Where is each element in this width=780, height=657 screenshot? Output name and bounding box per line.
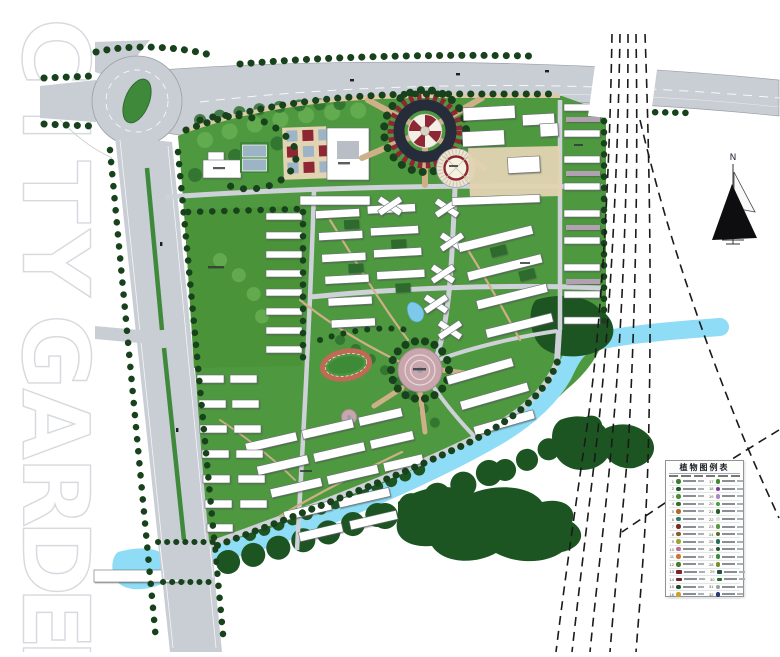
legend-cell xyxy=(698,518,704,520)
legend-row: 925 xyxy=(669,538,740,546)
legend-cell xyxy=(737,480,743,482)
legend-cell: 15 xyxy=(669,584,674,589)
legend-cell: 1 xyxy=(669,479,674,484)
legend-cell: 6 xyxy=(669,517,674,522)
tennis-courts xyxy=(240,142,269,173)
legend-cell xyxy=(737,503,743,505)
legend-cell xyxy=(683,495,696,497)
legend-cell xyxy=(683,586,696,588)
plant-icon xyxy=(716,502,721,507)
legend-cell xyxy=(722,518,735,520)
legend-cell: 21 xyxy=(709,509,714,514)
legend-cell xyxy=(698,556,704,558)
plant-icon xyxy=(716,487,721,492)
legend-cell xyxy=(698,510,704,512)
legend-cell xyxy=(722,526,735,528)
plant-icon xyxy=(676,494,681,499)
plant-icon xyxy=(716,554,721,559)
legend-cell xyxy=(683,518,696,520)
legend-cell: 27 xyxy=(709,554,714,559)
legend-cell xyxy=(683,526,696,528)
legend-cell: 31 xyxy=(709,584,714,589)
legend-cell xyxy=(698,488,704,490)
plant-icon xyxy=(716,494,721,499)
legend-cell xyxy=(683,541,696,543)
legend-cell xyxy=(739,578,745,580)
legend-cell: 3 xyxy=(669,494,674,499)
legend-cell: 11 xyxy=(669,554,674,559)
legend-cell xyxy=(722,533,735,535)
lake xyxy=(112,548,166,589)
legend-cell xyxy=(722,495,735,497)
legend-row: 1329 xyxy=(669,569,740,577)
legend-cell xyxy=(698,548,704,550)
watermark-letter: D xyxy=(2,520,109,596)
legend-cell xyxy=(684,578,697,580)
legend-cell xyxy=(683,556,696,558)
legend-cell xyxy=(737,526,743,528)
legend-cell: 19 xyxy=(709,494,714,499)
legend-cell xyxy=(698,541,704,543)
legend-cell xyxy=(683,480,696,482)
legend-cell xyxy=(722,503,735,505)
legend-cell xyxy=(737,488,743,490)
legend-row: 1127 xyxy=(669,553,740,561)
legend-cell xyxy=(698,495,704,497)
watermark-letter: N xyxy=(2,640,109,653)
bridge xyxy=(158,542,216,582)
plant-icon xyxy=(676,554,681,559)
watermark-letter: G xyxy=(2,314,109,390)
legend-cell xyxy=(737,533,743,535)
legend-row: 1228 xyxy=(669,561,740,569)
legend-cell: 14 xyxy=(669,577,674,582)
legend-row: 420 xyxy=(669,501,740,509)
plant-icon xyxy=(716,509,721,514)
legend-cell xyxy=(698,593,704,595)
legend-cell xyxy=(737,495,743,497)
legend-cell xyxy=(722,541,735,543)
legend-cell xyxy=(683,510,696,512)
legend-cell xyxy=(722,586,735,588)
legend-cell: 18 xyxy=(709,486,714,491)
plant-icon xyxy=(716,592,721,597)
legend-cell: 28 xyxy=(709,562,714,567)
legend-cell xyxy=(737,593,743,595)
legend-cell: 20 xyxy=(709,501,714,506)
legend-header xyxy=(669,475,740,477)
watermark-letter: T xyxy=(2,161,109,224)
legend-cell xyxy=(683,563,696,565)
legend-cell: 16 xyxy=(669,592,674,597)
legend-row: 319 xyxy=(669,493,740,501)
legend-cell: 23 xyxy=(709,524,714,529)
plant-icon xyxy=(716,524,721,529)
plant-icon xyxy=(676,524,681,529)
legend-cell xyxy=(698,526,704,528)
legend-cell: 22 xyxy=(709,517,714,522)
plant-icon xyxy=(716,562,721,567)
plant-icon xyxy=(676,585,681,590)
legend-cell xyxy=(737,541,743,543)
legend-cell: 5 xyxy=(669,509,674,514)
legend-cell: 4 xyxy=(669,501,674,506)
legend-cell: 29 xyxy=(710,569,715,574)
school-building xyxy=(327,128,369,180)
legend-cell xyxy=(739,571,745,573)
legend-cell xyxy=(737,586,743,588)
legend-cell: 26 xyxy=(709,547,714,552)
north-label: N xyxy=(730,153,737,163)
legend-cell xyxy=(684,571,697,573)
plant-icon xyxy=(676,487,681,492)
legend-row: 723 xyxy=(669,523,740,531)
plant-legend-table: 植物图例表 1172183194205216227238249251026112… xyxy=(665,460,744,597)
legend-cell xyxy=(683,503,696,505)
plant-icon xyxy=(676,592,681,597)
legend-cell xyxy=(737,556,743,558)
legend-cell xyxy=(699,571,705,573)
legend-cell: 17 xyxy=(709,479,714,484)
legend-cell: 30 xyxy=(710,577,715,582)
legend-cell: 7 xyxy=(669,524,674,529)
legend-cell xyxy=(683,488,696,490)
legend-cell xyxy=(698,533,704,535)
legend-title: 植物图例表 xyxy=(669,463,740,474)
legend-row: 1026 xyxy=(669,546,740,554)
legend-row: 218 xyxy=(669,486,740,494)
plant-icon xyxy=(676,509,681,514)
plant-icon xyxy=(676,517,681,522)
plant-icon xyxy=(717,570,723,574)
legend-cell xyxy=(683,593,696,595)
plant-icon xyxy=(676,539,681,544)
legend-cell xyxy=(737,518,743,520)
legend-cell xyxy=(737,510,743,512)
legend-cell xyxy=(737,563,743,565)
legend-cell: 13 xyxy=(669,569,674,574)
legend-cell xyxy=(722,510,735,512)
legend-rows: 1172183194205216227238249251026112712281… xyxy=(669,478,740,599)
legend-cell xyxy=(722,548,735,550)
city-garden-masterplan: { "watermark": { "letters": ["C","I","T"… xyxy=(0,0,780,652)
legend-row: 824 xyxy=(669,531,740,539)
site-plan-map: C I T Y G A R D E N xyxy=(0,0,780,652)
legend-cell: 12 xyxy=(669,562,674,567)
plant-icon xyxy=(716,532,721,537)
watermark-letter: R xyxy=(2,457,109,528)
legend-row: 521 xyxy=(669,508,740,516)
legend-cell: 10 xyxy=(669,547,674,552)
legend-cell xyxy=(722,488,735,490)
plant-icon xyxy=(716,517,721,522)
legend-cell: 2 xyxy=(669,486,674,491)
legend-cell xyxy=(683,548,696,550)
legend-cell: 9 xyxy=(669,539,674,544)
roundabout-west-stub xyxy=(40,80,96,122)
watermark-letter: Y xyxy=(2,229,109,298)
legend-row: 117 xyxy=(669,478,740,486)
legend-cell: 25 xyxy=(709,539,714,544)
legend-cell: 8 xyxy=(669,532,674,537)
plant-icon xyxy=(717,578,723,582)
plant-icon xyxy=(676,479,681,484)
watermark-letter: A xyxy=(2,388,109,459)
plant-icon xyxy=(716,479,721,484)
plant-icon xyxy=(676,570,682,574)
legend-row: 1632 xyxy=(669,591,740,599)
plant-icon xyxy=(676,562,681,567)
legend-cell xyxy=(683,533,696,535)
legend-cell xyxy=(722,563,735,565)
west-green-field xyxy=(184,206,302,368)
plant-icon xyxy=(676,532,681,537)
plant-icon xyxy=(676,578,682,582)
legend-cell xyxy=(698,480,704,482)
legend-cell xyxy=(722,593,735,595)
plant-icon xyxy=(716,547,721,552)
legend-cell xyxy=(722,556,735,558)
plant-icon xyxy=(676,502,681,507)
legend-cell: 24 xyxy=(709,532,714,537)
legend-cell xyxy=(722,480,735,482)
legend-cell xyxy=(737,548,743,550)
legend-cell xyxy=(698,586,704,588)
plant-icon xyxy=(676,547,681,552)
legend-cell xyxy=(724,578,737,580)
plant-icon xyxy=(716,539,721,544)
plant-icon xyxy=(716,585,721,590)
legend-cell xyxy=(699,578,705,580)
legend-cell xyxy=(698,503,704,505)
legend-cell xyxy=(724,571,737,573)
legend-row: 622 xyxy=(669,516,740,524)
legend-row: 1430 xyxy=(669,576,740,584)
legend-row: 1531 xyxy=(669,584,740,592)
legend-cell: 32 xyxy=(709,592,714,597)
legend-cell xyxy=(698,563,704,565)
